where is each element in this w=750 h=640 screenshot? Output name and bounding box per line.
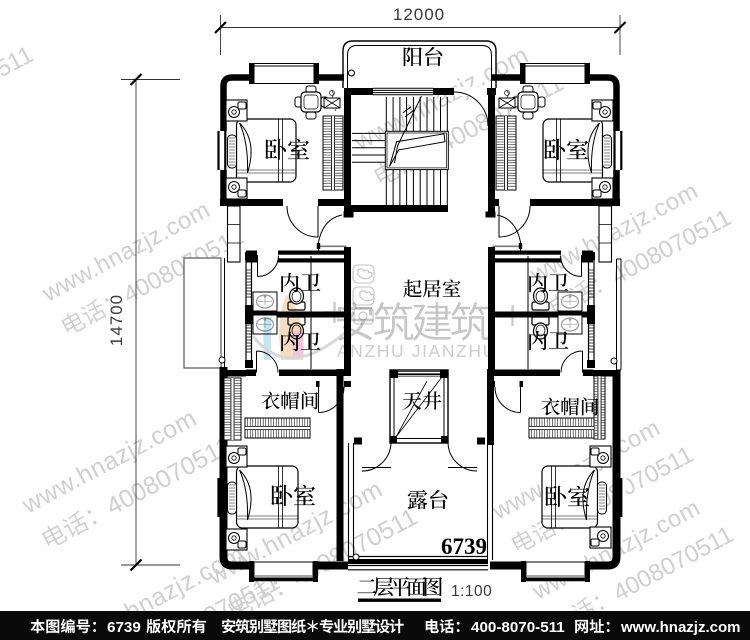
svg-text:400-8070-511: 400-8070-511 [471, 619, 565, 636]
svg-text:1:100: 1:100 [451, 583, 492, 600]
svg-text:6739: 6739 [107, 619, 141, 636]
svg-text:www.hnazjz.com: www.hnazjz.com [620, 619, 740, 636]
svg-text:ANZHU JIANZHU: ANZHU JIANZHU [337, 341, 497, 361]
svg-text:12000: 12000 [393, 5, 445, 24]
svg-text:14700: 14700 [107, 294, 126, 346]
svg-text:6739: 6739 [441, 534, 487, 559]
